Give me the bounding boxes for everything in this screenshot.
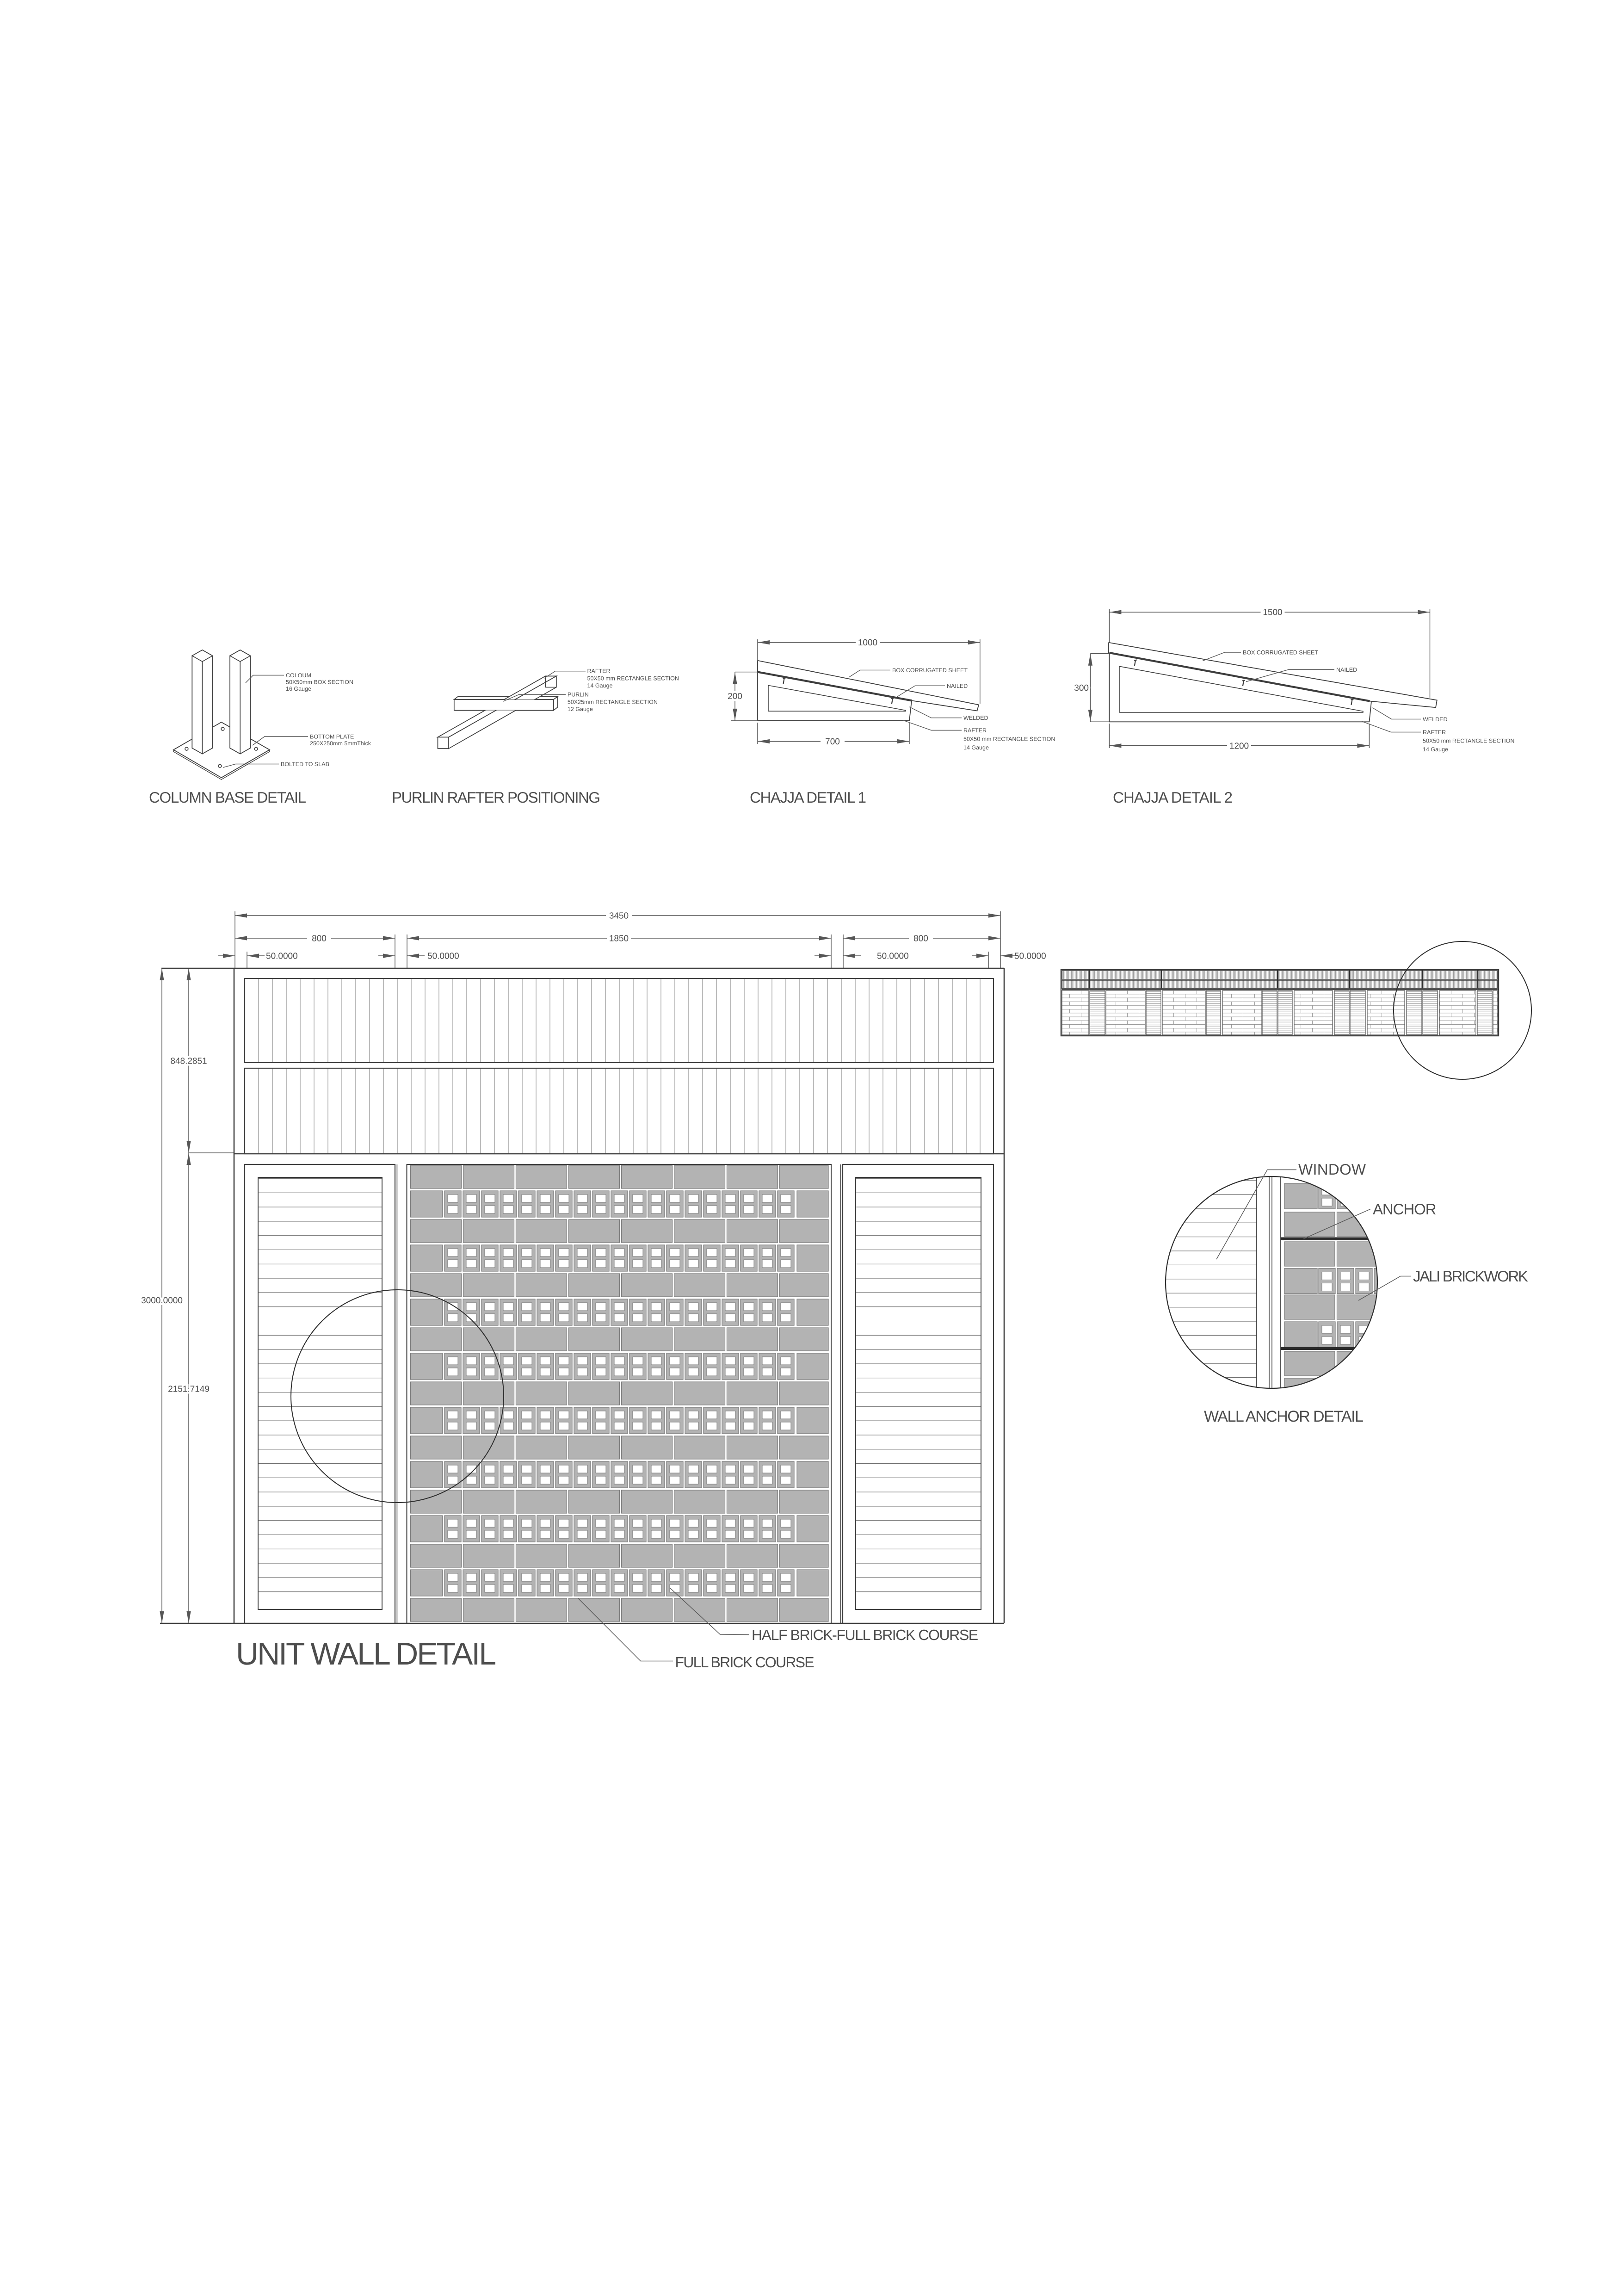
svg-text:700: 700: [825, 737, 840, 747]
svg-text:CHAJJA DETAIL 2: CHAJJA DETAIL 2: [1113, 789, 1232, 806]
svg-text:PURLIN: PURLIN: [568, 692, 589, 698]
svg-text:BOLTED TO SLAB: BOLTED TO SLAB: [281, 761, 329, 767]
svg-text:50.0000: 50.0000: [427, 952, 459, 961]
svg-text:CHAJJA DETAIL 1: CHAJJA DETAIL 1: [750, 789, 866, 806]
svg-text:1850: 1850: [609, 934, 629, 944]
svg-text:300: 300: [1074, 683, 1089, 693]
svg-text:PURLIN RAFTER POSITIONING: PURLIN RAFTER POSITIONING: [392, 789, 599, 806]
svg-text:3000.0000: 3000.0000: [141, 1296, 183, 1306]
svg-text:50.0000: 50.0000: [1014, 952, 1046, 961]
svg-text:HALF BRICK-FULL BRICK COURSE: HALF BRICK-FULL BRICK COURSE: [752, 1627, 978, 1643]
svg-text:250X250mm 5mmThick: 250X250mm 5mmThick: [310, 740, 371, 747]
svg-text:14 Gauge: 14 Gauge: [963, 744, 989, 751]
svg-text:WELDED: WELDED: [963, 715, 988, 721]
svg-text:800: 800: [312, 934, 327, 944]
svg-text:WALL ANCHOR DETAIL: WALL ANCHOR DETAIL: [1204, 1408, 1363, 1425]
svg-text:WELDED: WELDED: [1423, 716, 1447, 723]
svg-text:RAFTER: RAFTER: [587, 668, 611, 675]
svg-text:RAFTER: RAFTER: [1423, 729, 1446, 736]
svg-text:RAFTER: RAFTER: [963, 727, 987, 734]
svg-text:2151.7149: 2151.7149: [168, 1385, 210, 1394]
svg-text:WINDOW: WINDOW: [1298, 1161, 1366, 1178]
svg-text:NAILED: NAILED: [1336, 667, 1357, 673]
svg-text:50X50 mm RECTANGLE SECTION: 50X50 mm RECTANGLE SECTION: [587, 675, 679, 682]
svg-text:BOX CORRUGATED SHEET: BOX CORRUGATED SHEET: [892, 667, 968, 674]
svg-text:50.0000: 50.0000: [266, 952, 298, 961]
svg-text:BOTTOM PLATE: BOTTOM PLATE: [310, 734, 354, 740]
svg-text:JALI BRICKWORK: JALI BRICKWORK: [1413, 1268, 1528, 1285]
svg-text:848.2851: 848.2851: [170, 1057, 207, 1066]
svg-text:1500: 1500: [1263, 608, 1282, 618]
svg-text:800: 800: [913, 934, 928, 944]
svg-text:1000: 1000: [858, 638, 877, 648]
svg-text:3450: 3450: [609, 911, 629, 921]
svg-text:50.0000: 50.0000: [877, 952, 909, 961]
svg-text:ANCHOR: ANCHOR: [1373, 1201, 1436, 1218]
svg-text:50X50 mm RECTANGLE SECTION: 50X50 mm RECTANGLE SECTION: [963, 736, 1055, 743]
svg-text:1200: 1200: [1229, 741, 1249, 751]
svg-text:NAILED: NAILED: [947, 683, 968, 689]
svg-text:FULL BRICK COURSE: FULL BRICK COURSE: [675, 1654, 814, 1671]
svg-text:COLOUM: COLOUM: [286, 672, 311, 679]
svg-text:UNIT WALL DETAIL: UNIT WALL DETAIL: [236, 1636, 495, 1671]
svg-text:12 Gauge: 12 Gauge: [568, 706, 593, 712]
svg-text:14 Gauge: 14 Gauge: [587, 682, 613, 689]
svg-text:200: 200: [728, 692, 742, 701]
svg-text:BOX CORRUGATED SHEET: BOX CORRUGATED SHEET: [1243, 650, 1318, 656]
svg-text:COLUMN BASE DETAIL: COLUMN BASE DETAIL: [149, 789, 306, 806]
svg-text:50X25mm RECTANGLE SECTION: 50X25mm RECTANGLE SECTION: [568, 699, 658, 705]
svg-text:14 Gauge: 14 Gauge: [1423, 746, 1448, 753]
svg-text:16 Gauge: 16 Gauge: [286, 686, 311, 692]
svg-text:50X50mm BOX SECTION: 50X50mm BOX SECTION: [286, 679, 353, 686]
svg-text:50X50 mm RECTANGLE SECTION: 50X50 mm RECTANGLE SECTION: [1423, 738, 1514, 744]
